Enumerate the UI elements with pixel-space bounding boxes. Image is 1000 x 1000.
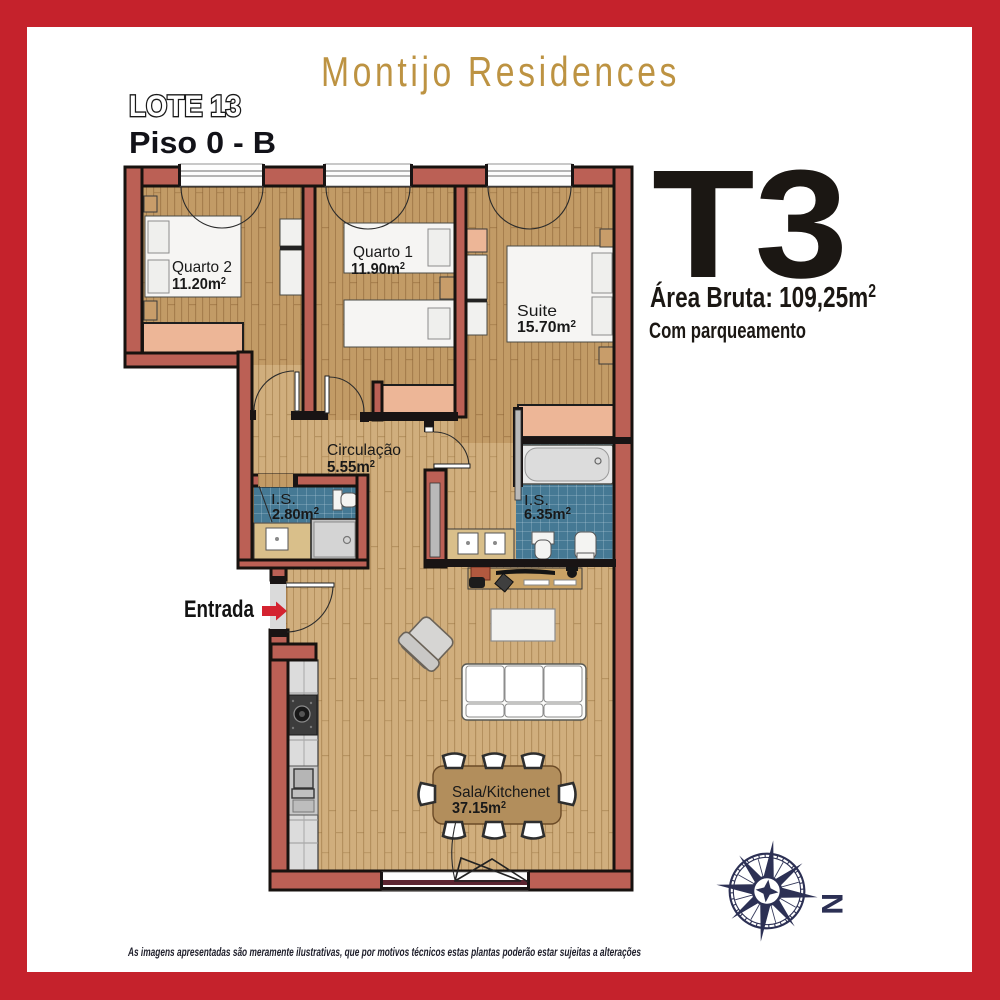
- svg-text:5.55m2: 5.55m2: [327, 459, 375, 476]
- svg-text:37.15m2: 37.15m2: [452, 800, 506, 817]
- svg-text:Área Bruta: 109,25m2: Área Bruta: 109,25m2: [650, 280, 876, 314]
- svg-text:LOTE 13: LOTE 13: [129, 90, 241, 123]
- svg-text:11.20m2: 11.20m2: [172, 276, 226, 293]
- svg-text:Circulação: Circulação: [327, 442, 401, 459]
- svg-text:6.35m2: 6.35m2: [524, 506, 571, 523]
- svg-text:Com parqueamento: Com parqueamento: [649, 318, 806, 343]
- svg-text:15.70m2: 15.70m2: [517, 319, 576, 336]
- svg-text:Piso 0 - B: Piso 0 - B: [129, 125, 276, 160]
- svg-text:2.80m2: 2.80m2: [272, 506, 319, 523]
- svg-text:Suite: Suite: [517, 303, 557, 320]
- svg-text:Entrada: Entrada: [184, 596, 255, 623]
- svg-text:Quarto 1: Quarto 1: [353, 244, 413, 261]
- svg-text:11.90m2: 11.90m2: [351, 261, 405, 278]
- svg-text:Quarto 2: Quarto 2: [172, 259, 232, 276]
- svg-text:As imagens apresentadas são me: As imagens apresentadas são meramente il…: [127, 945, 641, 959]
- svg-text:Montijo Residences: Montijo Residences: [321, 48, 680, 95]
- svg-text:Sala/Kitchenet: Sala/Kitchenet: [452, 784, 551, 801]
- svg-text:N: N: [815, 893, 848, 915]
